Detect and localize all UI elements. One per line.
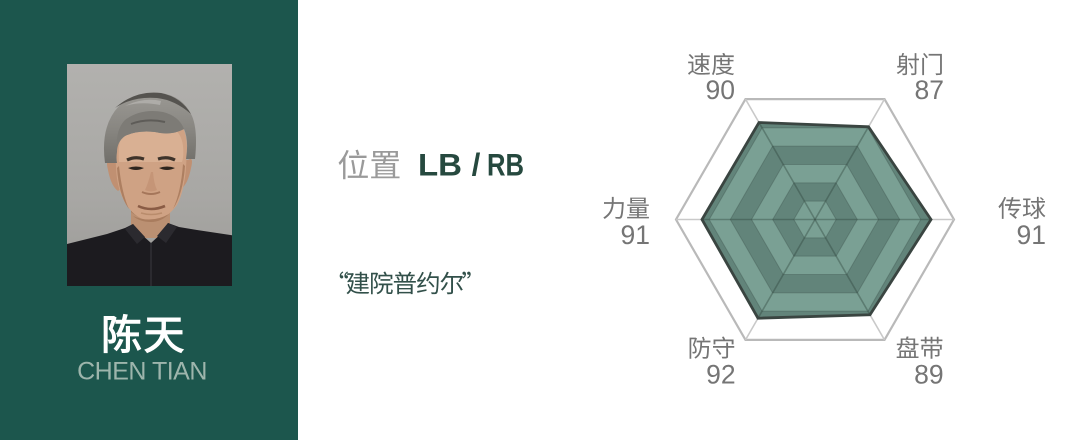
svg-text:91: 91	[621, 220, 650, 250]
svg-text:92: 92	[706, 360, 735, 390]
svg-text:90: 90	[706, 75, 735, 105]
svg-text:RB: RB	[487, 146, 524, 182]
svg-text:/: /	[472, 146, 481, 182]
svg-text:87: 87	[915, 75, 944, 105]
svg-text:LB: LB	[418, 146, 462, 182]
svg-text:91: 91	[1017, 220, 1046, 250]
svg-text:CHEN TIAN: CHEN TIAN	[77, 358, 207, 386]
svg-text:89: 89	[914, 360, 943, 390]
